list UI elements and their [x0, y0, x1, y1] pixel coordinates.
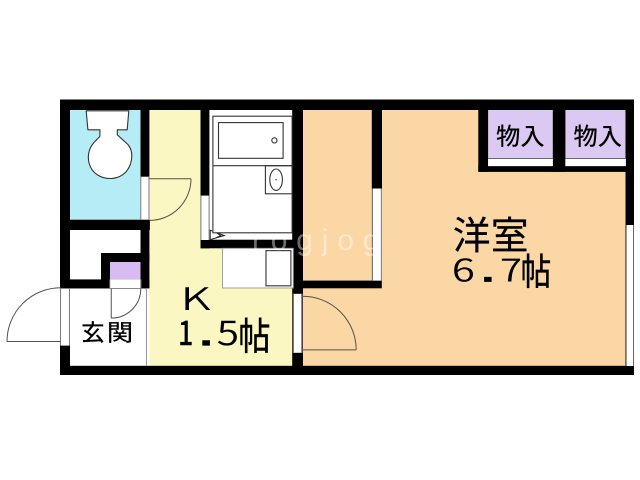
svg-text:rogjog: rogjog — [252, 224, 388, 257]
